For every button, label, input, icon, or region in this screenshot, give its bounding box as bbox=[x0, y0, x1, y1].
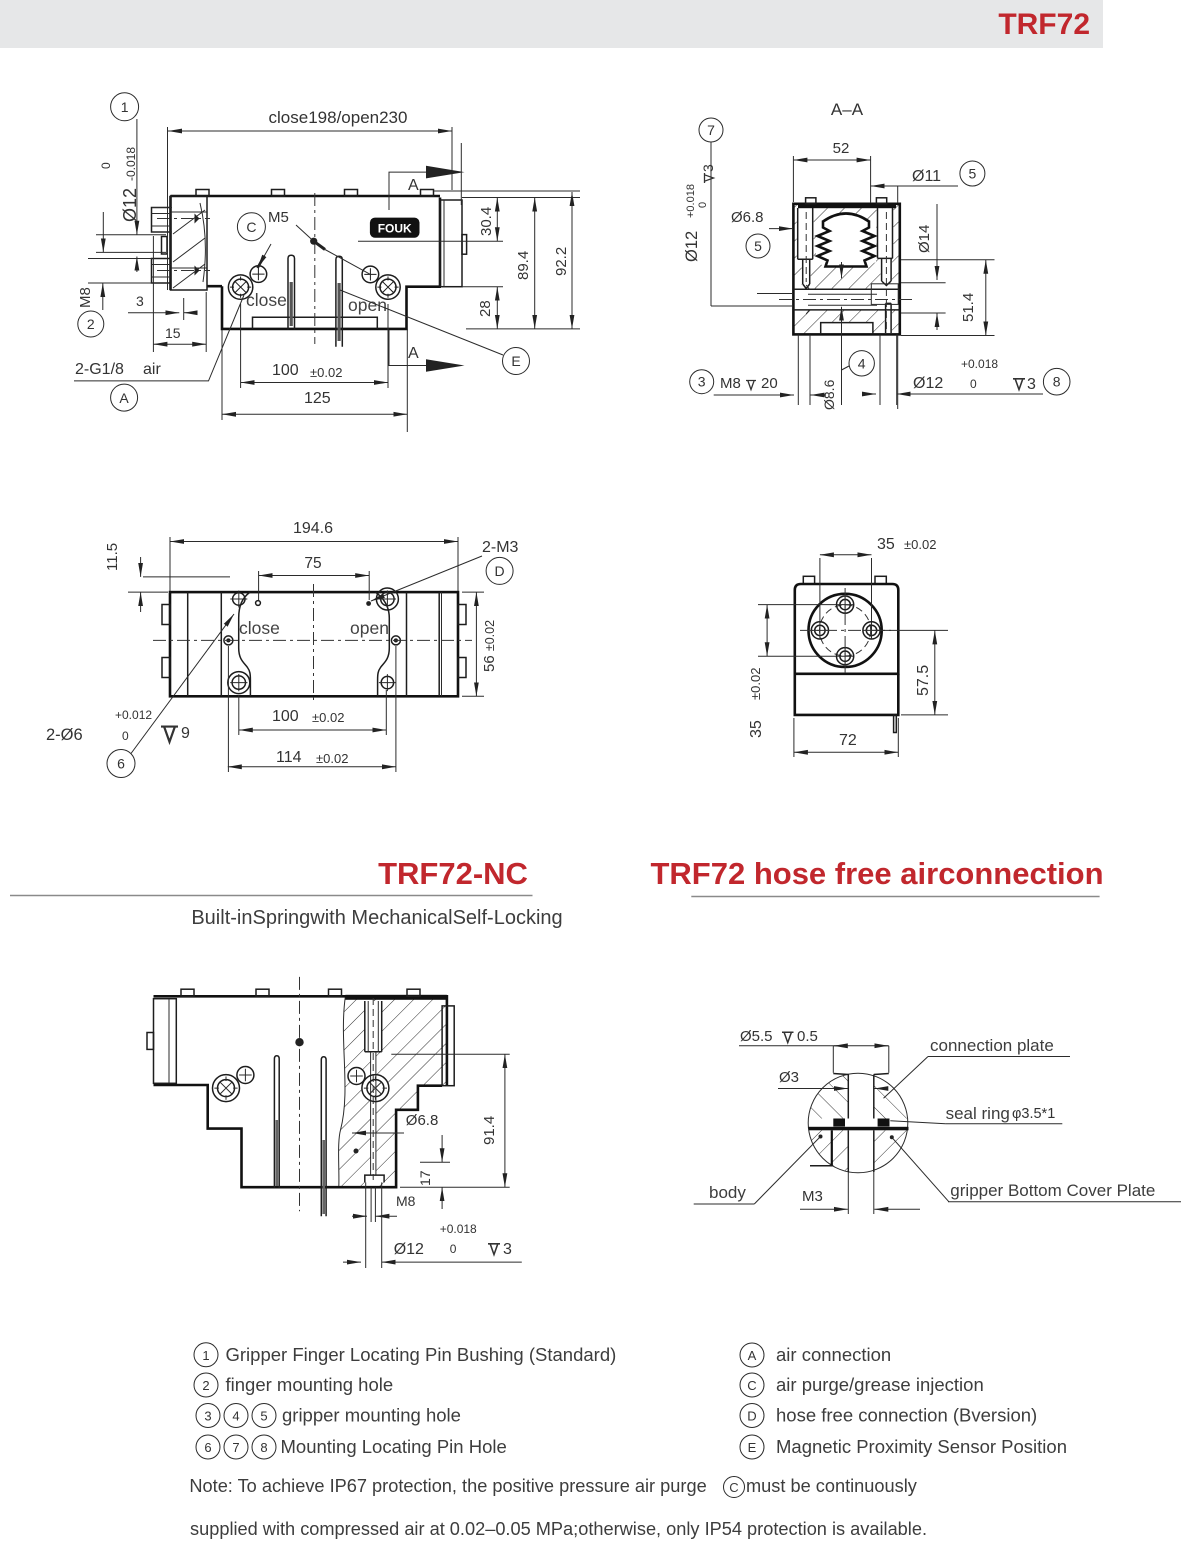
svg-text:0: 0 bbox=[970, 377, 977, 391]
svg-text:8: 8 bbox=[1053, 374, 1061, 390]
svg-text:17: 17 bbox=[417, 1170, 433, 1186]
svg-text:35: 35 bbox=[877, 536, 895, 553]
svg-text:4: 4 bbox=[858, 355, 866, 371]
svg-text:28: 28 bbox=[477, 300, 494, 317]
svg-text:194.6: 194.6 bbox=[293, 520, 333, 537]
svg-text:±0.02: ±0.02 bbox=[904, 537, 936, 552]
svg-text:2: 2 bbox=[87, 316, 95, 332]
svg-text:125: 125 bbox=[304, 390, 331, 407]
svg-text:15: 15 bbox=[165, 325, 181, 341]
svg-text:11.5: 11.5 bbox=[104, 543, 121, 571]
svg-text:gripper mounting hole: gripper mounting hole bbox=[282, 1405, 461, 1426]
svg-text:5: 5 bbox=[969, 166, 977, 182]
svg-text:20: 20 bbox=[761, 375, 778, 392]
svg-text:100: 100 bbox=[272, 362, 299, 379]
svg-text:Ø12: Ø12 bbox=[683, 231, 701, 262]
svg-text:114: 114 bbox=[276, 749, 302, 766]
svg-text:M8: M8 bbox=[720, 375, 741, 392]
svg-text:2-Ø6: 2-Ø6 bbox=[46, 726, 83, 744]
svg-text:Gripper Finger Locating Pin Bu: Gripper Finger Locating Pin Bushing (Sta… bbox=[226, 1344, 617, 1365]
svg-text:D: D bbox=[747, 1409, 756, 1424]
svg-text:C: C bbox=[246, 219, 256, 235]
svg-text:0: 0 bbox=[697, 202, 709, 208]
svg-text:±0.02: ±0.02 bbox=[748, 668, 763, 700]
svg-text:Ø11: Ø11 bbox=[912, 168, 941, 185]
svg-text:A: A bbox=[119, 390, 129, 406]
svg-text:Mounting Locating Pin Hole: Mounting Locating Pin Hole bbox=[281, 1436, 507, 1457]
svg-text:7: 7 bbox=[707, 122, 715, 138]
svg-text:3: 3 bbox=[700, 164, 716, 172]
svg-text:Ø8.6: Ø8.6 bbox=[821, 379, 837, 410]
svg-text:+0.018: +0.018 bbox=[685, 184, 697, 218]
svg-text:finger mounting hole: finger mounting hole bbox=[226, 1374, 394, 1395]
svg-text:E: E bbox=[748, 1440, 757, 1455]
svg-text:30.4: 30.4 bbox=[478, 207, 495, 236]
svg-text:air: air bbox=[143, 361, 161, 378]
svg-text:air connection: air connection bbox=[776, 1344, 891, 1365]
svg-text:1: 1 bbox=[121, 99, 129, 115]
svg-text:1: 1 bbox=[202, 1348, 209, 1363]
svg-text:6: 6 bbox=[117, 756, 125, 772]
svg-text:air purge/grease injection: air purge/grease injection bbox=[776, 1374, 984, 1395]
svg-text:3: 3 bbox=[503, 1241, 512, 1258]
svg-text:91.4: 91.4 bbox=[481, 1116, 498, 1145]
svg-text:Magnetic Proximity Sensor Posi: Magnetic Proximity Sensor Position bbox=[776, 1436, 1067, 1457]
svg-text:±0.02: ±0.02 bbox=[310, 365, 342, 380]
svg-text:72: 72 bbox=[839, 732, 857, 749]
svg-text:9: 9 bbox=[181, 725, 190, 742]
svg-text:100: 100 bbox=[272, 708, 299, 725]
svg-text:Ø12: Ø12 bbox=[913, 375, 943, 392]
svg-text:Ø6.8: Ø6.8 bbox=[731, 209, 764, 226]
svg-text:56 ±0.02: 56 ±0.02 bbox=[481, 620, 498, 672]
svg-text:close: close bbox=[239, 618, 280, 638]
svg-text:52: 52 bbox=[833, 140, 850, 157]
svg-text:M8: M8 bbox=[77, 287, 94, 308]
svg-text:A–A: A–A bbox=[831, 100, 864, 119]
svg-text:φ3.5*1: φ3.5*1 bbox=[1012, 1106, 1055, 1122]
svg-text:92.2: 92.2 bbox=[553, 247, 570, 276]
svg-text:+0.018: +0.018 bbox=[440, 1222, 477, 1236]
svg-text:3: 3 bbox=[136, 293, 144, 309]
svg-text:A: A bbox=[408, 177, 419, 194]
svg-text:A: A bbox=[748, 1348, 757, 1363]
svg-text:E: E bbox=[511, 353, 520, 369]
svg-text:+0.018: +0.018 bbox=[961, 357, 998, 371]
svg-text:2-M3: 2-M3 bbox=[482, 539, 519, 556]
svg-text:D: D bbox=[495, 563, 505, 579]
svg-text:M8: M8 bbox=[396, 1193, 416, 1209]
svg-text:TRF72: TRF72 bbox=[998, 8, 1090, 41]
svg-text:C: C bbox=[729, 1480, 738, 1495]
svg-text:-0.018: -0.018 bbox=[124, 147, 138, 181]
svg-text:open: open bbox=[348, 295, 387, 315]
svg-text:C: C bbox=[747, 1378, 756, 1393]
svg-text:2: 2 bbox=[202, 1378, 209, 1393]
svg-text:75: 75 bbox=[304, 555, 321, 572]
svg-text:Ø14: Ø14 bbox=[916, 225, 933, 253]
svg-text:Ø5.5: Ø5.5 bbox=[740, 1028, 773, 1045]
svg-text:M5: M5 bbox=[268, 209, 289, 226]
svg-text:0: 0 bbox=[122, 729, 129, 743]
svg-text:TRF72 hose free airconnection: TRF72 hose free airconnection bbox=[650, 856, 1103, 891]
svg-text:Ø12: Ø12 bbox=[394, 1241, 424, 1258]
svg-text:FOUK: FOUK bbox=[378, 221, 412, 235]
svg-text:close: close bbox=[246, 290, 287, 310]
svg-text:89.4: 89.4 bbox=[515, 251, 532, 280]
svg-text:7: 7 bbox=[232, 1440, 239, 1455]
svg-text:0: 0 bbox=[450, 1242, 457, 1256]
svg-text:Note: To achieve IP67 protecti: Note: To achieve IP67 protection, the po… bbox=[189, 1476, 706, 1496]
svg-text:connection plate: connection plate bbox=[930, 1036, 1054, 1055]
svg-text:3: 3 bbox=[204, 1409, 211, 1424]
svg-text:51.4: 51.4 bbox=[960, 293, 977, 322]
svg-text:5: 5 bbox=[260, 1409, 267, 1424]
svg-text:2-G1/8: 2-G1/8 bbox=[75, 361, 124, 378]
svg-text:seal ring: seal ring bbox=[946, 1104, 1010, 1123]
svg-text:gripper Bottom Cover Plate: gripper Bottom Cover Plate bbox=[950, 1181, 1155, 1200]
svg-text:4: 4 bbox=[232, 1409, 239, 1424]
svg-text:close198/open230: close198/open230 bbox=[269, 108, 408, 127]
svg-text:must be continuously: must be continuously bbox=[746, 1476, 918, 1496]
svg-text:57.5: 57.5 bbox=[915, 665, 932, 696]
svg-text:Ø6.8: Ø6.8 bbox=[406, 1112, 439, 1129]
svg-text:±0.02: ±0.02 bbox=[312, 710, 344, 725]
svg-text:8: 8 bbox=[260, 1440, 267, 1455]
svg-text:3: 3 bbox=[698, 374, 706, 390]
svg-text:TRF72-NC: TRF72-NC bbox=[378, 856, 528, 891]
svg-text:0.5: 0.5 bbox=[797, 1028, 818, 1045]
svg-text:M3: M3 bbox=[802, 1188, 823, 1205]
svg-text:A: A bbox=[408, 345, 419, 362]
svg-text:Built-inSpringwith MechanicalS: Built-inSpringwith MechanicalSelf-Lockin… bbox=[191, 907, 562, 929]
svg-text:Ø12: Ø12 bbox=[120, 188, 140, 222]
svg-text:3: 3 bbox=[1027, 376, 1036, 393]
svg-text:open: open bbox=[350, 618, 389, 638]
svg-text:+0.012: +0.012 bbox=[115, 708, 152, 722]
svg-text:body: body bbox=[709, 1183, 746, 1202]
svg-text:supplied with compressed air a: supplied with compressed air at 0.02–0.0… bbox=[190, 1519, 927, 1539]
svg-text:35: 35 bbox=[748, 720, 765, 738]
svg-text:0: 0 bbox=[99, 162, 113, 169]
svg-text:hose free connection (Bversio: hose free connection (Bversion) bbox=[776, 1405, 1037, 1426]
svg-text:Ø3: Ø3 bbox=[779, 1069, 799, 1086]
svg-text:5: 5 bbox=[754, 238, 762, 254]
svg-text:±0.02: ±0.02 bbox=[316, 751, 348, 766]
svg-text:6: 6 bbox=[204, 1440, 211, 1455]
